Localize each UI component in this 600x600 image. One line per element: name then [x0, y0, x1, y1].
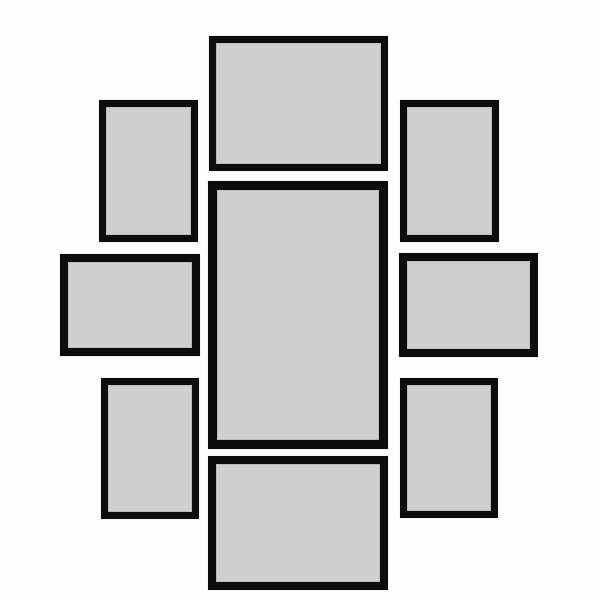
frame-top-left	[99, 100, 198, 242]
frame-top-right	[400, 100, 499, 242]
frame-top-right-mat	[407, 107, 492, 235]
frame-bottom-right-mat	[407, 385, 491, 511]
frame-bottom-center	[208, 456, 388, 590]
frame-bottom-right	[400, 378, 498, 518]
frame-middle-left	[60, 254, 200, 356]
frame-bottom-center-mat	[216, 464, 380, 582]
frame-bottom-left	[101, 378, 199, 519]
frame-middle-right-mat	[407, 261, 530, 349]
frame-center	[208, 181, 388, 449]
frame-middle-left-mat	[68, 262, 192, 348]
frame-top-center-mat	[216, 43, 381, 164]
frame-center-mat	[217, 190, 379, 440]
frame-collage-image	[0, 0, 600, 600]
frame-top-center	[209, 36, 388, 171]
frame-middle-right	[399, 253, 538, 357]
frame-bottom-left-mat	[108, 385, 192, 512]
frame-top-left-mat	[106, 107, 191, 235]
